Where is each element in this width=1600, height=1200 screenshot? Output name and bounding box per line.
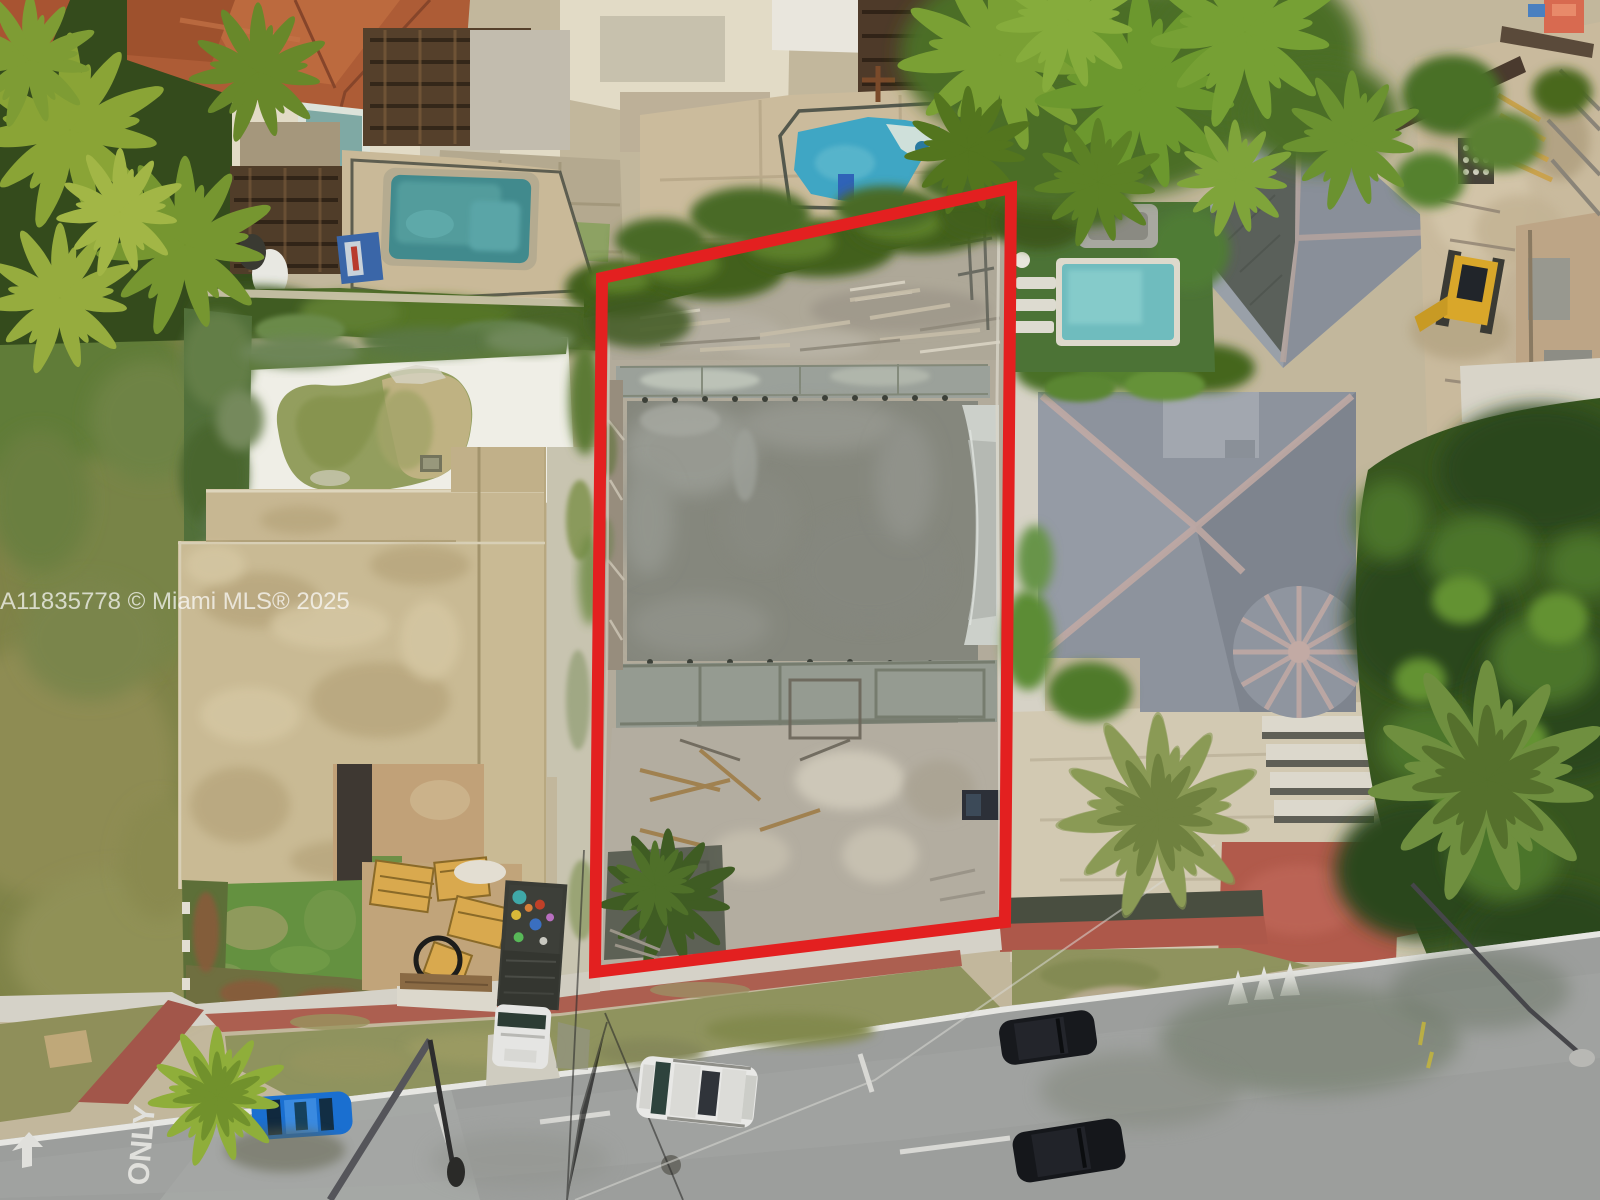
svg-text:A11835778 © Miami MLS® 2025: A11835778 © Miami MLS® 2025 <box>0 588 350 615</box>
svg-text:ONLY: ONLY <box>122 1103 162 1186</box>
